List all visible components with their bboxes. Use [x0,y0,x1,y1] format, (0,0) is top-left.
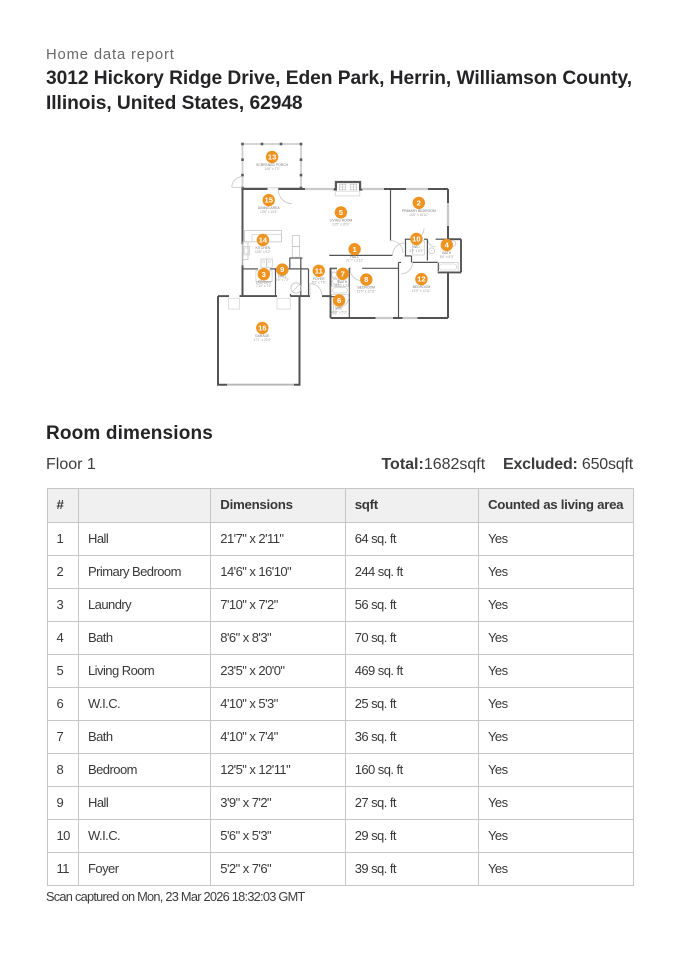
svg-text:14: 14 [259,236,268,245]
svg-text:9: 9 [280,265,284,274]
svg-text:11: 11 [315,266,324,275]
svg-text:4'10" x 5'3": 4'10" x 5'3" [331,310,347,314]
svg-text:7'10" x 7'2": 7'10" x 7'2" [256,284,272,288]
svg-text:13'8" x 10'4": 13'8" x 10'4" [260,210,277,214]
svg-text:14'6" x 16'10": 14'6" x 16'10" [409,213,428,217]
svg-text:12'9" x 12'11": 12'9" x 12'11" [412,289,431,293]
svg-text:16: 16 [258,324,266,333]
svg-text:10: 10 [412,235,420,244]
svg-text:12: 12 [417,275,425,284]
svg-text:12'5" x 12'11": 12'5" x 12'11" [357,290,376,294]
svg-text:4'10" x 7'4": 4'10" x 7'4" [335,284,351,288]
svg-text:2: 2 [417,199,421,208]
svg-text:10'6" x 9'2": 10'6" x 9'2" [255,250,271,254]
svg-text:3'9" x 7'2": 3'9" x 7'2" [275,278,289,282]
svg-text:14'6" x 7'2": 14'6" x 7'2" [264,167,280,171]
svg-text:15: 15 [264,196,273,205]
svg-text:3: 3 [262,270,266,279]
svg-text:21'7" x 2'11": 21'7" x 2'11" [346,259,363,263]
svg-text:27'1" x 22'4": 27'1" x 22'4" [254,338,271,342]
svg-text:7: 7 [341,269,345,278]
svg-text:13: 13 [268,153,276,162]
svg-text:6: 6 [337,296,341,305]
svg-text:5'2" x 7'6": 5'2" x 7'6" [312,281,326,285]
svg-text:23'5" x 20'0": 23'5" x 20'0" [332,222,349,226]
svg-text:5'6" x 5'3": 5'6" x 5'3" [409,249,423,253]
svg-text:8: 8 [364,275,368,284]
svg-text:8'6" x 8'3": 8'6" x 8'3" [440,255,454,259]
